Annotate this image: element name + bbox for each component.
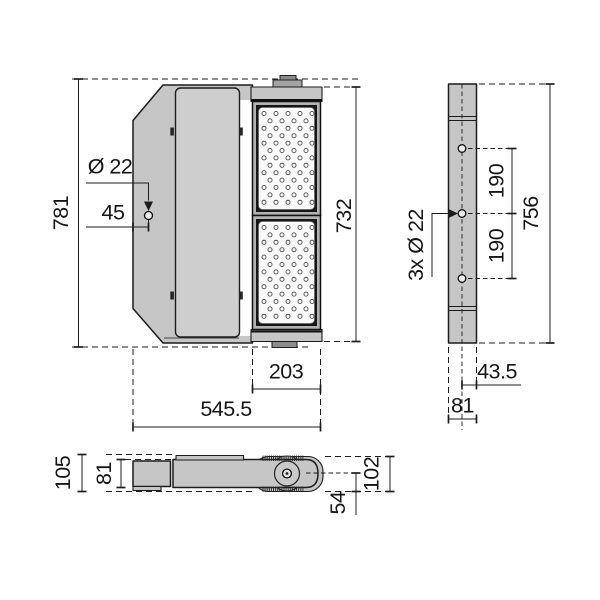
module-plate-top bbox=[176, 456, 244, 461]
dim-hole-spacing-top: 190 bbox=[485, 149, 517, 214]
cable-gland-top bbox=[273, 76, 302, 88]
side-view: 3x Ø 22 190 190 756 43.5 bbox=[404, 84, 555, 430]
dim-yoke-depth: 102 bbox=[360, 457, 395, 492]
panel-clip bbox=[170, 292, 174, 300]
led-module-top bbox=[253, 102, 321, 216]
dim-label-module-height: 732 bbox=[332, 199, 356, 233]
dim-module-width: 203 bbox=[253, 349, 321, 427]
dim-label-overall-105: 105 bbox=[51, 455, 75, 490]
visor-lip bbox=[133, 487, 161, 491]
mounting-bracket-bottom bbox=[251, 330, 322, 342]
dim-overall-height: 781 bbox=[49, 79, 83, 347]
floodlight-dimension-drawing: Ø 22 45 781 732 bbox=[0, 0, 600, 600]
led-module-bottom bbox=[253, 216, 321, 330]
dim-label-pivot-54: 54 bbox=[326, 491, 350, 514]
dim-label-yoke-102: 102 bbox=[360, 457, 384, 491]
dim-label-hole-dia: Ø 22 bbox=[88, 155, 133, 179]
dim-bracket-height: 756 bbox=[519, 84, 555, 343]
front-view: Ø 22 45 781 732 bbox=[49, 76, 361, 432]
dim-label-depth: 81 bbox=[451, 394, 474, 418]
panel-clip bbox=[239, 128, 243, 136]
dim-pivot-offset: 54 bbox=[326, 473, 361, 515]
dim-module-height: 732 bbox=[324, 87, 361, 342]
mounting-bracket-top bbox=[251, 87, 322, 102]
bracket-hole-middle bbox=[458, 210, 466, 218]
bottom-view: 105 81 102 54 bbox=[51, 455, 395, 516]
dim-label-module-width: 203 bbox=[269, 360, 304, 384]
dim-edge-offset: 43.5 bbox=[462, 360, 521, 390]
panel-clip bbox=[239, 292, 243, 300]
dim-depth: 81 bbox=[449, 394, 477, 424]
dim-label-bracket-height: 756 bbox=[519, 196, 543, 231]
mounting-hole bbox=[145, 212, 153, 220]
bracket-hole-top bbox=[458, 145, 466, 153]
dim-overall-depth: 105 bbox=[51, 455, 87, 492]
dim-label-overall-width: 545.5 bbox=[200, 397, 252, 421]
dim-label-hole-offset: 45 bbox=[102, 201, 125, 225]
visor-block bbox=[133, 461, 171, 487]
dim-label-spacing-top: 190 bbox=[485, 163, 509, 198]
housing-front-panel bbox=[176, 88, 240, 337]
technical-drawing-page: Ø 22 45 781 732 bbox=[0, 0, 600, 600]
dim-label-bracket-holes: 3x Ø 22 bbox=[404, 209, 428, 281]
dim-label-body-81: 81 bbox=[92, 462, 116, 485]
panel-clip bbox=[170, 128, 174, 136]
pivot-knob bbox=[275, 461, 300, 486]
dim-hole-spacing-bottom: 190 bbox=[485, 214, 517, 279]
dim-label-edge-offset: 43.5 bbox=[477, 360, 517, 384]
dim-label-overall-height: 781 bbox=[49, 196, 73, 230]
dim-label-spacing-bottom: 190 bbox=[485, 228, 509, 263]
bracket-hole-bottom bbox=[458, 275, 466, 283]
dim-body-depth: 81 bbox=[92, 460, 126, 488]
